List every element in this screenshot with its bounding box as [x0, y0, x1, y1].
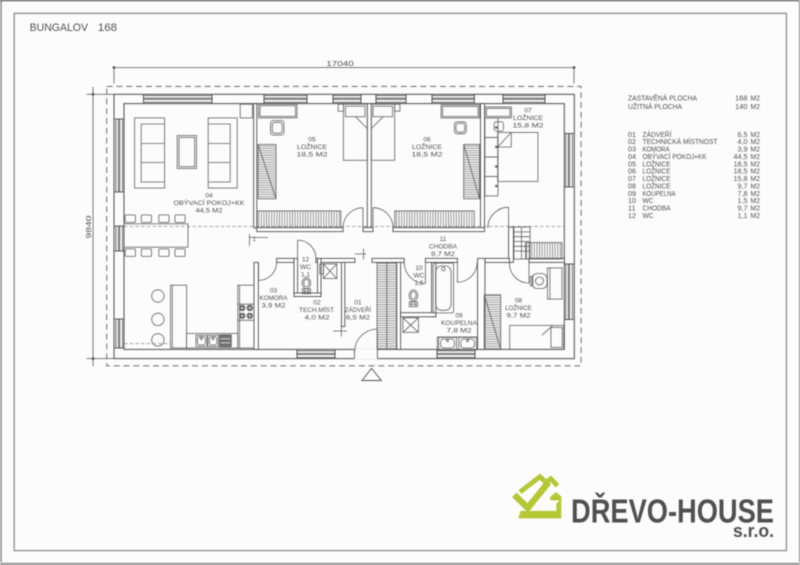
svg-text:4,0 M2: 4,0 M2 [305, 314, 330, 321]
svg-text:WC: WC [643, 211, 654, 220]
svg-text:18,5 M2: 18,5 M2 [297, 151, 328, 158]
svg-text:WC: WC [300, 264, 311, 271]
svg-text:18,5 M2: 18,5 M2 [412, 151, 443, 158]
svg-text:12: 12 [628, 211, 636, 220]
svg-text:9840: 9840 [84, 216, 93, 239]
svg-text:M2: M2 [751, 102, 761, 111]
svg-text:05: 05 [308, 137, 316, 144]
svg-text:LOŽNICE: LOŽNICE [505, 303, 532, 312]
svg-text:07: 07 [524, 108, 532, 115]
svg-text:1,1: 1,1 [301, 271, 310, 278]
svg-text:TECH.MÍST.: TECH.MÍST. [299, 305, 335, 314]
svg-text:44,5 M2: 44,5 M2 [196, 207, 223, 214]
svg-text:9,7 M2: 9,7 M2 [431, 251, 455, 258]
svg-text:CHODBA: CHODBA [429, 243, 458, 250]
svg-text:ZÁDVEŘÍ: ZÁDVEŘÍ [345, 305, 371, 314]
svg-text:168: 168 [98, 22, 117, 34]
svg-text:3,9 M2: 3,9 M2 [262, 302, 286, 309]
svg-text:1,5: 1,5 [414, 280, 423, 287]
svg-text:M2: M2 [751, 211, 761, 220]
svg-text:140: 140 [735, 102, 747, 111]
svg-text:9,7 M2: 9,7 M2 [507, 312, 531, 319]
svg-text:06: 06 [423, 137, 431, 144]
svg-text:11: 11 [440, 236, 447, 243]
svg-text:KOMORA: KOMORA [260, 295, 289, 302]
svg-text:15,8 M2: 15,8 M2 [513, 122, 544, 129]
svg-text:UŽITNÁ PLOCHA: UŽITNÁ PLOCHA [628, 102, 682, 111]
svg-text:LOŽNICE: LOŽNICE [513, 113, 544, 122]
svg-text:OBÝVACÍ POKOJ+KK: OBÝVACÍ POKOJ+KK [174, 198, 246, 207]
svg-text:12: 12 [302, 257, 310, 264]
svg-text:08: 08 [515, 298, 523, 305]
svg-text:LOŽNICE: LOŽNICE [297, 142, 328, 151]
svg-text:03: 03 [270, 288, 278, 295]
svg-text:17040: 17040 [326, 59, 354, 68]
svg-text:09: 09 [455, 313, 463, 320]
svg-text:1,1: 1,1 [738, 211, 748, 220]
svg-text:04: 04 [205, 193, 213, 200]
svg-text:BUNGALOV: BUNGALOV [30, 22, 89, 34]
svg-text:7,8 M2: 7,8 M2 [447, 327, 472, 334]
svg-text:01: 01 [354, 300, 362, 307]
svg-text:6,5 M2: 6,5 M2 [346, 314, 370, 321]
svg-text:KOUPELNA: KOUPELNA [441, 320, 478, 327]
svg-text:02: 02 [313, 300, 321, 307]
svg-text:10: 10 [415, 265, 423, 272]
svg-text:WC: WC [414, 272, 425, 279]
svg-text:s.r.o.: s.r.o. [733, 521, 774, 541]
svg-text:LOŽNICE: LOŽNICE [412, 142, 443, 151]
